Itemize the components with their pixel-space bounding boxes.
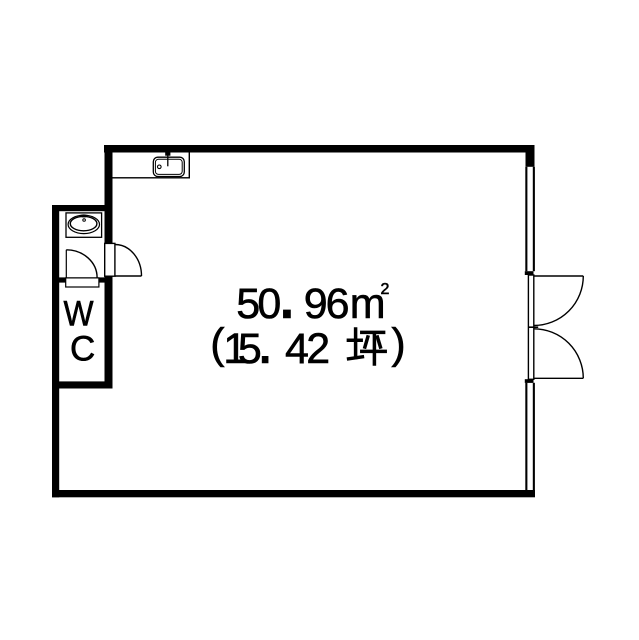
svg-text:W: W [63,295,93,334]
svg-text:C: C [70,330,95,369]
svg-text:2: 2 [306,325,330,373]
svg-text:.: . [277,250,298,334]
svg-text:6: 6 [326,280,350,328]
svg-text:): ) [391,320,405,368]
svg-text:.: . [256,307,274,377]
svg-text:2: 2 [381,281,390,298]
svg-text:9: 9 [304,280,328,328]
